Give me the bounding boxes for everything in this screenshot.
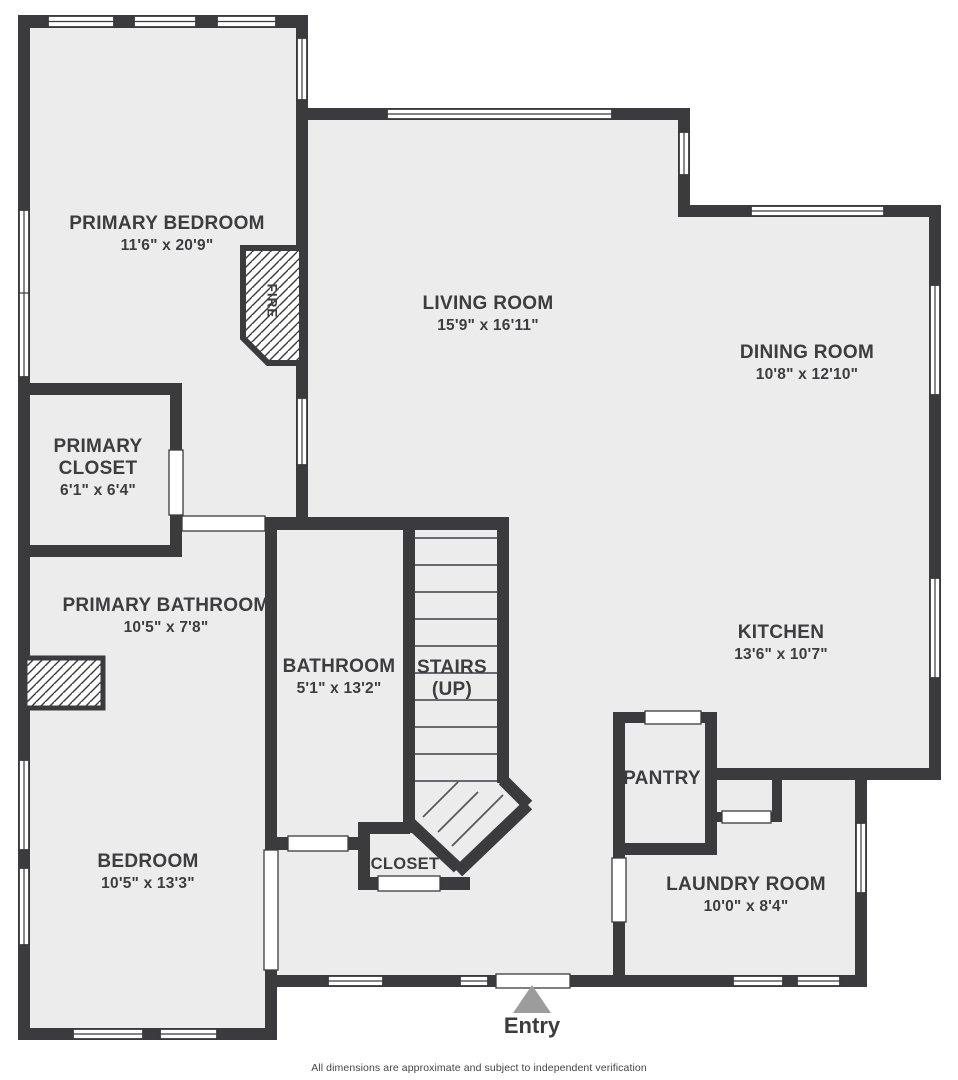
floor-plan-page: PRIMARY BEDROOM 11'6" x 20'9" PRIMARY CL… xyxy=(0,0,958,1080)
entry-arrow-icon xyxy=(513,985,551,1013)
entry-label: Entry xyxy=(504,1013,560,1039)
floor-plan-drawing xyxy=(0,0,958,1080)
disclaimer-text: All dimensions are approximate and subje… xyxy=(311,1062,647,1074)
shower-pad xyxy=(25,658,103,708)
fireplace-label: FIRE xyxy=(265,284,280,319)
